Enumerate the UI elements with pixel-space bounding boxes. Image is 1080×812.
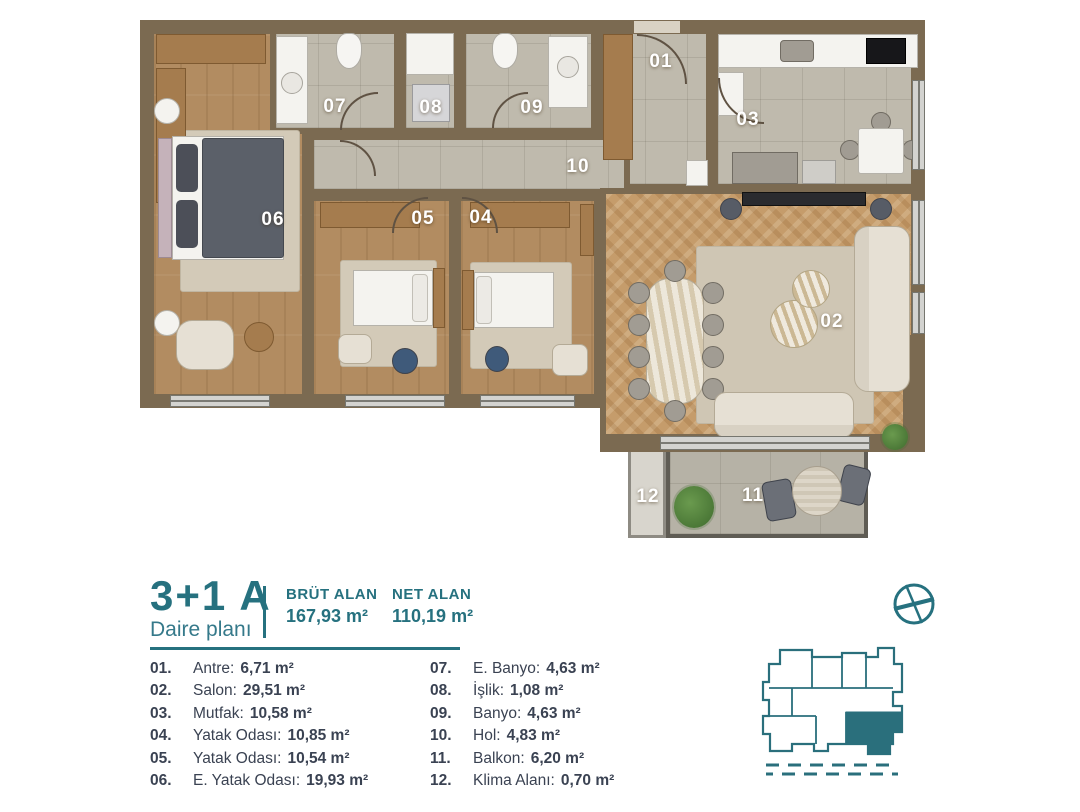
dining-table xyxy=(646,278,704,404)
legend-num: 12. xyxy=(430,772,473,790)
legend-area: 0,70 m² xyxy=(561,772,614,790)
legend-name: Mutfak: xyxy=(193,705,244,723)
legend-row: 07.E. Banyo:4,63 m² xyxy=(430,660,614,682)
room-label-07: 07 xyxy=(323,96,346,118)
speaker xyxy=(720,198,742,220)
cooktop xyxy=(866,38,906,64)
legend-name: İşlik: xyxy=(473,682,504,700)
side-table xyxy=(244,322,274,352)
legend-num: 06. xyxy=(150,772,193,790)
legend-area: 4,63 m² xyxy=(527,705,580,723)
vertical-divider xyxy=(263,586,266,638)
legend-num: 07. xyxy=(430,660,473,678)
room-label-04: 04 xyxy=(469,207,492,229)
legend-row: 08.İşlik:1,08 m² xyxy=(430,682,614,704)
armchair xyxy=(176,320,234,370)
legend-name: Yatak Odası: xyxy=(193,750,281,768)
legend-row: 02.Salon:29,51 m² xyxy=(150,682,368,704)
legend-area: 4,83 m² xyxy=(507,727,560,745)
bed-pillow xyxy=(176,144,198,192)
window-salon-right-2 xyxy=(912,292,925,334)
room-label-10: 10 xyxy=(566,156,589,178)
bed-headboard xyxy=(462,270,474,330)
floor-plan-page: 01 02 03 04 05 06 07 08 09 10 11 12 3+1 … xyxy=(0,0,1080,812)
floor-lamp xyxy=(154,98,180,124)
dining-chair xyxy=(702,314,724,336)
legend-column-2: 07.E. Banyo:4,63 m² 08.İşlik:1,08 m² 09.… xyxy=(430,660,614,794)
window-salon-right-1 xyxy=(912,200,925,285)
bed-headboard xyxy=(158,138,172,258)
desk-chair xyxy=(392,348,418,374)
bed-pillow xyxy=(476,276,492,324)
legend-area: 10,85 m² xyxy=(287,727,349,745)
net-alan-block: NET ALAN 110,19 m² xyxy=(392,586,473,627)
room-label-05: 05 xyxy=(411,208,434,230)
coffee-table xyxy=(792,270,830,308)
plant xyxy=(674,486,714,528)
wardrobe xyxy=(156,34,266,64)
legend-row: 04.Yatak Odası:10,85 m² xyxy=(150,727,368,749)
legend-num: 01. xyxy=(150,660,193,678)
dining-chair xyxy=(628,282,650,304)
net-alan-value: 110,19 m² xyxy=(392,606,473,627)
window-kitchen-right xyxy=(912,80,925,170)
building-keyplan-icon xyxy=(756,628,908,785)
legend-name: Salon: xyxy=(193,682,237,700)
plant xyxy=(882,424,908,450)
dining-chair xyxy=(702,346,724,368)
legend-name: Banyo: xyxy=(473,705,521,723)
speaker xyxy=(870,198,892,220)
dining-chair xyxy=(664,400,686,422)
shoe-cabinet xyxy=(686,160,708,186)
window-bedroom05 xyxy=(345,395,445,407)
dining-chair xyxy=(840,140,860,160)
brut-alan-value: 167,93 m² xyxy=(286,606,377,627)
net-alan-label: NET ALAN xyxy=(392,586,473,603)
legend-area: 1,08 m² xyxy=(510,682,563,700)
legend-column-1: 01.Antre:6,71 m² 02.Salon:29,51 m² 03.Mu… xyxy=(150,660,368,794)
toilet xyxy=(492,33,518,69)
toilet xyxy=(336,33,362,69)
legend-num: 09. xyxy=(430,705,473,723)
room-label-03: 03 xyxy=(736,109,759,131)
window-bedroom04 xyxy=(480,395,575,407)
legend-num: 08. xyxy=(430,682,473,700)
dining-chair xyxy=(702,282,724,304)
balcony-table xyxy=(792,466,842,516)
legend-num: 11. xyxy=(430,750,473,768)
room-label-02: 02 xyxy=(820,311,843,333)
floor-plan: 01 02 03 04 05 06 07 08 09 10 11 12 xyxy=(140,20,928,540)
legend-name: Klima Alanı: xyxy=(473,772,555,790)
legend-num: 04. xyxy=(150,727,193,745)
dining-chair xyxy=(628,346,650,368)
bed-pillow xyxy=(412,274,428,322)
compass-icon xyxy=(890,580,938,633)
legend-row: 11.Balkon:6,20 m² xyxy=(430,750,614,772)
legend-row: 01.Antre:6,71 m² xyxy=(150,660,368,682)
legend-name: Balkon: xyxy=(473,750,525,768)
legend-area: 6,20 m² xyxy=(531,750,584,768)
sofa xyxy=(714,392,854,438)
sink xyxy=(281,72,303,94)
exterior-wall-top xyxy=(140,20,925,34)
legend-row: 09.Banyo:4,63 m² xyxy=(430,705,614,727)
legend-name: E. Banyo: xyxy=(473,660,540,678)
legend-num: 05. xyxy=(150,750,193,768)
brut-alan-label: BRÜT ALAN xyxy=(286,586,377,603)
legend-row: 10.Hol:4,83 m² xyxy=(430,727,614,749)
room-label-12: 12 xyxy=(636,486,659,508)
legend-num: 03. xyxy=(150,705,193,723)
bed-blanket xyxy=(202,138,284,258)
kitchen-cabinet xyxy=(802,160,836,184)
legend-name: Antre: xyxy=(193,660,234,678)
legend-name: Hol: xyxy=(473,727,501,745)
legend-num: 10. xyxy=(430,727,473,745)
room-label-09: 09 xyxy=(520,97,543,119)
entry-wardrobe xyxy=(603,34,633,160)
desk-chair xyxy=(485,346,509,372)
plan-title: 3+1 A xyxy=(150,572,272,620)
tv-unit xyxy=(742,192,866,206)
armchair xyxy=(338,334,372,364)
sofa xyxy=(854,226,910,392)
dining-chair xyxy=(628,314,650,336)
room-label-08: 08 xyxy=(419,97,442,119)
horizontal-divider xyxy=(150,647,460,650)
washing-machine xyxy=(406,33,454,75)
room-label-06: 06 xyxy=(261,209,284,231)
legend-row: 03.Mutfak:10,58 m² xyxy=(150,705,368,727)
kitchen-sink xyxy=(780,40,814,62)
legend-area: 10,54 m² xyxy=(287,750,349,768)
plan-subtitle: Daire planı xyxy=(150,618,252,642)
bed-headboard xyxy=(433,268,445,328)
legend-name: E. Yatak Odası: xyxy=(193,772,300,790)
legend-area: 6,71 m² xyxy=(240,660,293,678)
legend-row: 06.E. Yatak Odası:19,93 m² xyxy=(150,772,368,794)
dining-chair xyxy=(628,378,650,400)
armchair xyxy=(552,344,588,376)
brut-alan-block: BRÜT ALAN 167,93 m² xyxy=(286,586,377,627)
window-bedroom06 xyxy=(170,395,270,407)
exterior-wall-left xyxy=(140,20,154,408)
legend-num: 02. xyxy=(150,682,193,700)
dining-chair xyxy=(664,260,686,282)
sink xyxy=(557,56,579,78)
dresser xyxy=(580,204,594,256)
legend-row: 05.Yatak Odası:10,54 m² xyxy=(150,750,368,772)
kitchen-island xyxy=(732,152,798,184)
legend-row: 12.Klima Alanı:0,70 m² xyxy=(430,772,614,794)
legend-area: 4,63 m² xyxy=(546,660,599,678)
legend-area: 10,58 m² xyxy=(250,705,312,723)
room-label-01: 01 xyxy=(649,51,672,73)
kitchen-table xyxy=(858,128,904,174)
legend-area: 29,51 m² xyxy=(243,682,305,700)
legend-area: 19,93 m² xyxy=(306,772,368,790)
room-label-11: 11 xyxy=(742,485,764,507)
bed-pillow xyxy=(176,200,198,248)
legend-name: Yatak Odası: xyxy=(193,727,281,745)
entry-door-opening xyxy=(634,21,680,33)
window-balcony-slider xyxy=(660,436,870,450)
